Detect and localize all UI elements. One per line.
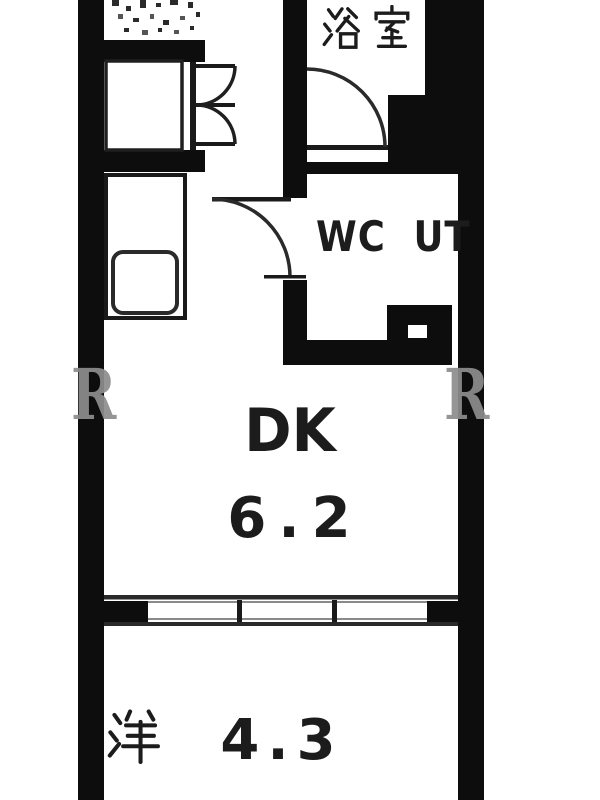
closet	[106, 61, 182, 150]
kanji-you	[104, 708, 162, 766]
pipe-shaft-lower	[388, 95, 484, 162]
kanji-shitsu	[376, 6, 408, 46]
western-room-label: 洋 4.3	[104, 708, 458, 773]
wc-door	[212, 197, 306, 279]
pipe-shaft-upper	[425, 0, 484, 95]
wc-ut-label: WC UT	[316, 212, 449, 261]
dk-area-value: 6.2	[118, 486, 472, 551]
bathroom-door	[307, 69, 388, 150]
watermark-letter-left: R	[71, 360, 116, 430]
bath-wc-wall	[283, 162, 461, 174]
closet-top-wall	[104, 40, 205, 62]
closet-bottom-wall	[104, 150, 205, 172]
dk-label: DK	[122, 396, 458, 466]
wc-dk-wall	[283, 340, 452, 365]
kitchen-sink	[113, 252, 177, 313]
sliding-door-track	[104, 595, 458, 626]
closet-folding-door	[190, 62, 235, 150]
western-room-area-value: 4.3	[220, 708, 343, 773]
watermark-letter-right: R	[444, 360, 489, 430]
floorplan-image: 浴室 WC UT DK 6.2 洋	[0, 0, 600, 800]
bathroom-kanji-glyphs	[316, 5, 416, 53]
notch-white-inset	[408, 325, 427, 338]
cropped-label-remnant	[112, 0, 200, 35]
kanji-yoku	[324, 9, 358, 47]
